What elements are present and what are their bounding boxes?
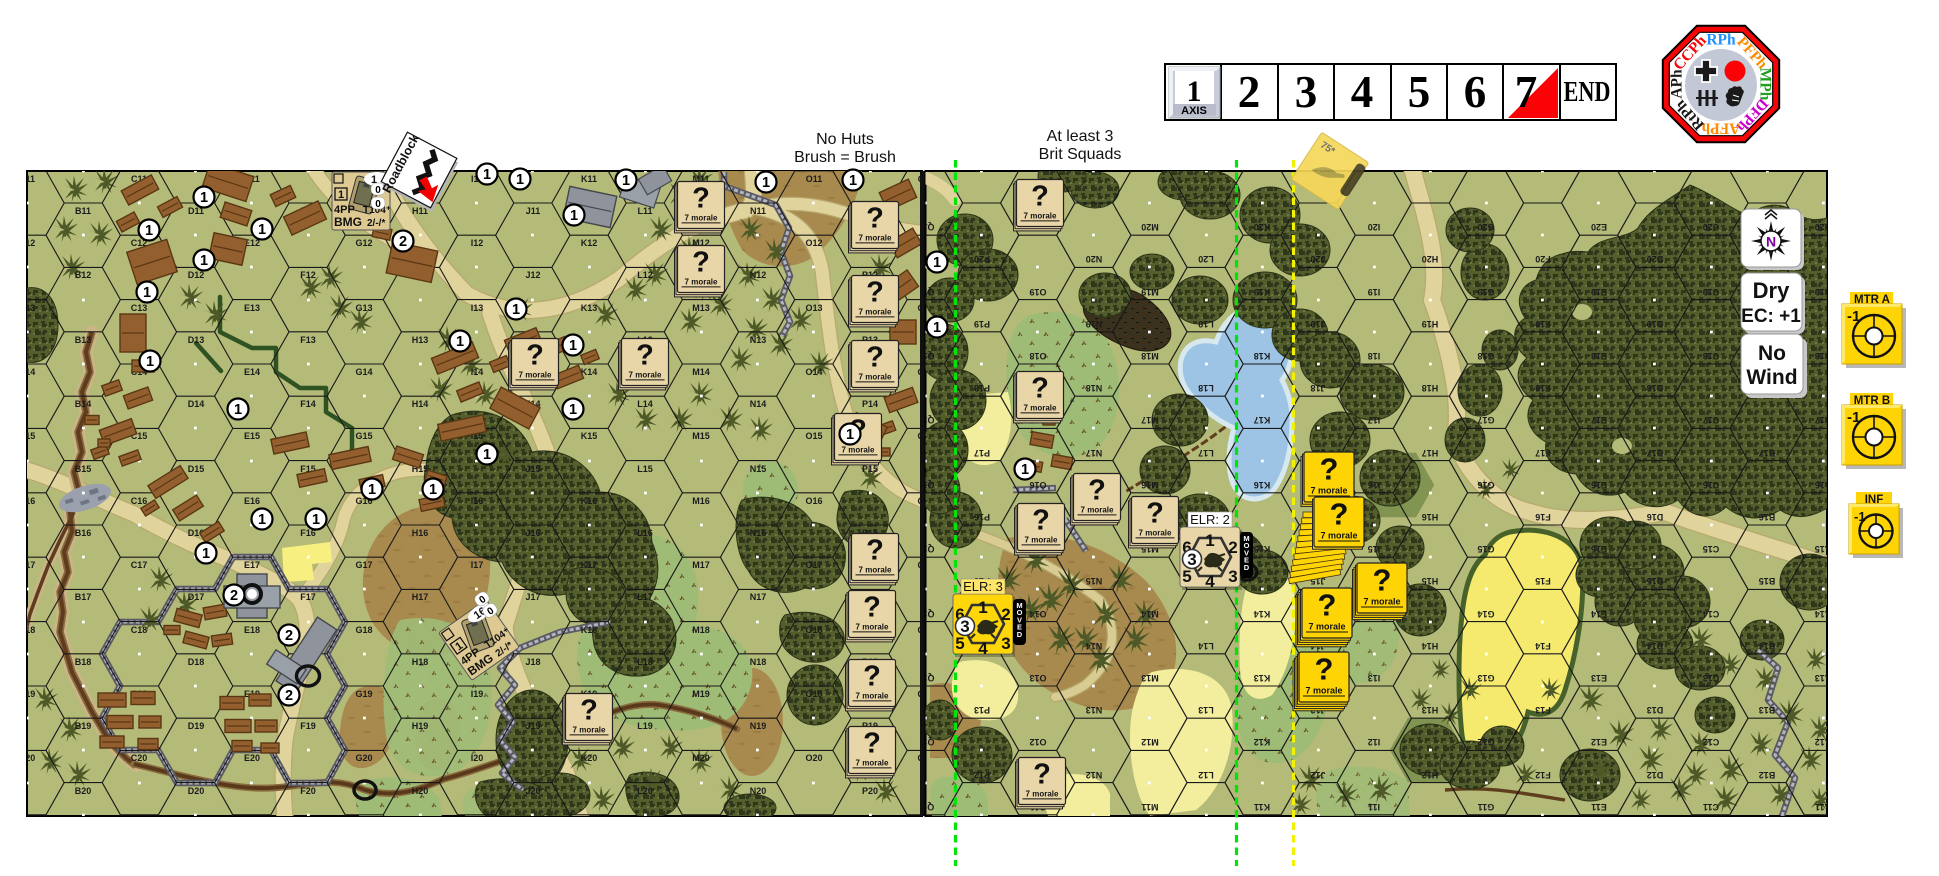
svg-text:?: ? [692, 246, 710, 278]
svg-text:O19: O19 [805, 689, 822, 699]
svg-text:?: ? [580, 694, 598, 726]
svg-text:1: 1 [429, 482, 437, 498]
svg-text:1: 1 [512, 302, 520, 318]
svg-text:F19: F19 [300, 721, 316, 731]
svg-text:M20: M20 [692, 753, 710, 763]
svg-text:1: 1 [569, 338, 577, 354]
svg-text:G12: G12 [1477, 737, 1494, 747]
svg-text:1: 1 [483, 167, 491, 183]
svg-text:P17: P17 [974, 448, 990, 458]
svg-text:?: ? [863, 727, 881, 759]
svg-text:F13: F13 [300, 335, 316, 345]
svg-text:A18: A18 [1815, 351, 1832, 361]
svg-text:H18: H18 [1422, 383, 1439, 393]
svg-text:N11: N11 [750, 206, 766, 216]
svg-text:K11: K11 [581, 174, 597, 184]
svg-text:F12: F12 [300, 270, 316, 280]
svg-text:H15: H15 [1422, 576, 1439, 586]
svg-text:L18: L18 [1198, 383, 1214, 393]
svg-text:N12: N12 [750, 270, 767, 280]
svg-text:I18: I18 [1368, 351, 1381, 361]
svg-text:1: 1 [258, 512, 266, 528]
svg-text:E17: E17 [1591, 415, 1607, 425]
svg-text:7 morale: 7 morale [1024, 404, 1057, 413]
svg-text:B13: B13 [1759, 705, 1776, 715]
svg-text:C12: C12 [1703, 737, 1720, 747]
svg-text:A18: A18 [19, 625, 36, 635]
svg-text:A20: A20 [1815, 222, 1832, 232]
svg-text:B16: B16 [1759, 512, 1776, 522]
svg-text:O16: O16 [805, 496, 822, 506]
svg-text:J19: J19 [525, 721, 540, 731]
svg-text:7 morale: 7 morale [859, 308, 892, 317]
svg-text:?: ? [1318, 588, 1337, 623]
svg-text:2: 2 [1238, 67, 1261, 117]
svg-text:O20: O20 [805, 753, 822, 763]
svg-text:K16: K16 [1254, 480, 1271, 490]
svg-text:E13: E13 [1591, 673, 1607, 683]
svg-text:P15: P15 [862, 464, 878, 474]
svg-text:K15: K15 [581, 431, 598, 441]
svg-text:E17: E17 [244, 560, 260, 570]
svg-text:I20: I20 [1368, 222, 1381, 232]
svg-text:J19: J19 [1310, 319, 1325, 329]
svg-text:B18: B18 [75, 657, 92, 667]
svg-text:H19: H19 [1422, 319, 1439, 329]
svg-text:J11: J11 [1311, 834, 1326, 844]
svg-text:E20: E20 [244, 753, 260, 763]
svg-text:F17: F17 [300, 592, 316, 602]
svg-text:I20: I20 [471, 753, 484, 763]
svg-text:E16: E16 [244, 496, 260, 506]
svg-text:E11: E11 [1591, 802, 1607, 812]
svg-text:D13: D13 [188, 335, 205, 345]
svg-text:D18: D18 [1647, 383, 1664, 393]
svg-text:?: ? [1315, 652, 1334, 687]
svg-text:H20: H20 [412, 786, 429, 796]
svg-text:L16: L16 [637, 528, 653, 538]
svg-text:G17: G17 [1477, 415, 1494, 425]
svg-text:F14: F14 [300, 399, 316, 409]
svg-text:B20: B20 [75, 786, 92, 796]
svg-text:?: ? [863, 660, 881, 692]
svg-text:C16: C16 [1703, 480, 1720, 490]
svg-text:F11: F11 [1535, 834, 1550, 844]
svg-text:2: 2 [285, 688, 293, 704]
svg-text:K13: K13 [581, 303, 598, 313]
svg-text:I16: I16 [471, 496, 484, 506]
svg-text:J20: J20 [1310, 254, 1325, 264]
svg-text:N18: N18 [1086, 383, 1103, 393]
svg-text:A20: A20 [19, 753, 36, 763]
svg-text:K16: K16 [581, 496, 598, 506]
svg-text:C19: C19 [1703, 287, 1720, 297]
svg-text:7 morale: 7 morale [1320, 531, 1357, 541]
svg-text:7 morale: 7 morale [1363, 597, 1400, 607]
svg-text:3: 3 [1001, 634, 1010, 653]
svg-text:K17: K17 [581, 560, 598, 570]
svg-text:G13: G13 [355, 303, 372, 313]
svg-text:C13: C13 [1703, 673, 1720, 683]
svg-text:C16: C16 [131, 496, 148, 506]
svg-text:-1: -1 [1847, 409, 1860, 426]
svg-text:K12: K12 [1254, 737, 1271, 747]
svg-text:B16: B16 [75, 528, 92, 538]
svg-text:E20: E20 [1591, 222, 1607, 232]
svg-text:P14: P14 [862, 399, 878, 409]
svg-text:J18: J18 [1310, 383, 1325, 393]
svg-text:G20: G20 [355, 753, 372, 763]
svg-text:C17: C17 [1703, 415, 1720, 425]
svg-text:2: 2 [1228, 538, 1237, 557]
svg-text:1: 1 [978, 598, 987, 617]
svg-text:C11: C11 [1703, 802, 1719, 812]
svg-text:B11: B11 [75, 206, 91, 216]
svg-text:O11: O11 [806, 174, 823, 184]
svg-text:O14: O14 [805, 367, 822, 377]
svg-text:Brush = Brush: Brush = Brush [794, 149, 896, 166]
svg-text:I19: I19 [471, 689, 484, 699]
svg-text:G15: G15 [1477, 544, 1494, 554]
svg-text:7 morale: 7 morale [859, 373, 892, 382]
svg-text:B13: B13 [75, 335, 92, 345]
svg-text:3: 3 [1295, 67, 1318, 117]
svg-text:7 morale: 7 morale [1024, 212, 1057, 221]
svg-text:B11: B11 [1759, 834, 1775, 844]
svg-text:B14: B14 [1759, 641, 1776, 651]
svg-text:G12: G12 [355, 238, 372, 248]
svg-text:N20: N20 [1086, 254, 1103, 264]
svg-text:?: ? [1031, 372, 1049, 404]
svg-text:F12: F12 [1535, 770, 1551, 780]
svg-text:C18: C18 [1703, 351, 1720, 361]
svg-text:G19: G19 [1477, 287, 1494, 297]
svg-text:2: 2 [230, 588, 238, 604]
svg-text:D20: D20 [188, 786, 205, 796]
svg-text:4: 4 [1351, 67, 1374, 117]
svg-text:A12: A12 [1815, 737, 1832, 747]
svg-text:EC: +1: EC: +1 [1741, 306, 1801, 327]
svg-text:1: 1 [234, 402, 242, 418]
svg-text:O16: O16 [1029, 480, 1046, 490]
svg-text:G19: G19 [355, 689, 372, 699]
svg-text:7 morale: 7 morale [1025, 536, 1058, 545]
svg-text:O18: O18 [805, 625, 822, 635]
svg-text:O13: O13 [1029, 673, 1046, 683]
svg-text:L18: L18 [637, 657, 653, 667]
svg-text:H14: H14 [412, 399, 429, 409]
svg-text:K15: K15 [1254, 544, 1271, 554]
svg-text:?: ? [1330, 497, 1349, 532]
svg-text:A16: A16 [19, 496, 36, 506]
svg-text:?: ? [526, 339, 544, 371]
svg-text:M19: M19 [1141, 287, 1159, 297]
svg-text:O15: O15 [805, 431, 822, 441]
svg-text:I12: I12 [471, 238, 484, 248]
svg-text:AXIS: AXIS [1181, 105, 1207, 117]
svg-text:I19: I19 [1368, 287, 1381, 297]
svg-text:C20: C20 [131, 753, 148, 763]
svg-text:A13: A13 [19, 303, 36, 313]
svg-text:K20: K20 [1254, 222, 1271, 232]
svg-text:K17: K17 [1254, 415, 1271, 425]
svg-text:M14: M14 [692, 367, 710, 377]
svg-text:ELR: 2: ELR: 2 [1190, 512, 1230, 527]
svg-text:1: 1 [258, 222, 266, 238]
svg-text:L12: L12 [637, 270, 653, 280]
svg-text:I13: I13 [471, 303, 484, 313]
svg-text:L20: L20 [1198, 254, 1214, 264]
svg-text:M12: M12 [1141, 737, 1159, 747]
svg-text:L14: L14 [1198, 641, 1214, 651]
svg-text:L19: L19 [1198, 319, 1214, 329]
svg-text:D14: D14 [188, 399, 205, 409]
svg-text:O12: O12 [1029, 737, 1046, 747]
svg-text:E16: E16 [1591, 480, 1607, 490]
svg-text:H12: H12 [1422, 770, 1439, 780]
svg-text:P19: P19 [974, 319, 990, 329]
svg-text:1: 1 [933, 255, 941, 271]
svg-text:M17: M17 [692, 560, 710, 570]
svg-text:O13: O13 [805, 303, 822, 313]
svg-text:N: N [1766, 234, 1776, 250]
svg-text:1: 1 [200, 190, 208, 206]
svg-text:C18: C18 [131, 625, 148, 635]
svg-text:J17: J17 [525, 592, 540, 602]
svg-text:-1: -1 [1854, 509, 1866, 524]
svg-text:K18: K18 [581, 625, 598, 635]
svg-text:M17: M17 [1141, 415, 1159, 425]
svg-text:7 morale: 7 morale [842, 446, 875, 455]
svg-text:H16: H16 [412, 528, 429, 538]
svg-text:Brit Squads: Brit Squads [1039, 146, 1122, 163]
svg-text:1: 1 [146, 354, 154, 370]
svg-text:I11: I11 [1368, 802, 1380, 812]
svg-text:I17: I17 [1368, 415, 1381, 425]
svg-text:4: 4 [1205, 572, 1215, 591]
svg-text:3: 3 [1187, 550, 1196, 569]
svg-text:1: 1 [200, 253, 208, 269]
svg-text:A13: A13 [1815, 673, 1832, 683]
svg-text:O18: O18 [1029, 351, 1046, 361]
svg-text:P20: P20 [862, 786, 878, 796]
svg-text:7 morale: 7 morale [1308, 622, 1345, 632]
svg-text:F18: F18 [1535, 383, 1551, 393]
svg-text:N15: N15 [1086, 576, 1103, 586]
svg-text:D13: D13 [1647, 705, 1664, 715]
svg-text:2: 2 [399, 234, 407, 250]
svg-text:J20: J20 [525, 786, 540, 796]
svg-text:B15: B15 [75, 464, 92, 474]
svg-text:E14: E14 [1591, 609, 1607, 619]
svg-text:1: 1 [622, 173, 630, 189]
svg-text:M20: M20 [1141, 222, 1159, 232]
svg-text:E12: E12 [1591, 737, 1607, 747]
svg-text:?: ? [1031, 180, 1049, 212]
svg-text:K11: K11 [1254, 802, 1270, 812]
svg-text:D: D [1244, 563, 1250, 572]
svg-text:N20: N20 [750, 786, 767, 796]
svg-text:G17: G17 [355, 560, 372, 570]
svg-text:D17: D17 [1647, 448, 1664, 458]
svg-text:?: ? [636, 339, 654, 371]
svg-text:J12: J12 [1310, 770, 1325, 780]
svg-text:F14: F14 [1535, 641, 1551, 651]
svg-text:K18: K18 [1254, 351, 1271, 361]
svg-text:B17: B17 [75, 592, 92, 602]
svg-text:7 morale: 7 morale [519, 371, 552, 380]
svg-text:D15: D15 [1647, 576, 1664, 586]
svg-text:P13: P13 [974, 705, 990, 715]
svg-text:E18: E18 [1591, 351, 1607, 361]
svg-text:7 morale: 7 morale [573, 726, 606, 735]
svg-text:M16: M16 [692, 496, 710, 506]
svg-text:K14: K14 [1254, 609, 1271, 619]
svg-text:Dry: Dry [1753, 278, 1790, 303]
svg-text:G18: G18 [1477, 351, 1494, 361]
svg-text:1: 1 [570, 208, 578, 224]
svg-text:D19: D19 [1647, 319, 1664, 329]
svg-text:E18: E18 [244, 625, 260, 635]
svg-text:L17: L17 [637, 592, 653, 602]
svg-text:K19: K19 [1254, 287, 1271, 297]
svg-text:Wind: Wind [1746, 366, 1797, 389]
svg-text:7 morale: 7 morale [1139, 529, 1172, 538]
svg-text:A11: A11 [1815, 802, 1831, 812]
svg-text:D18: D18 [188, 657, 205, 667]
svg-text:?: ? [863, 591, 881, 623]
svg-text:O17: O17 [805, 560, 822, 570]
svg-text:1: 1 [483, 447, 491, 463]
svg-text:?: ? [1320, 452, 1339, 487]
svg-text:J12: J12 [525, 270, 540, 280]
svg-text:A11: A11 [19, 174, 35, 184]
svg-text:J18: J18 [525, 657, 540, 667]
svg-text:L11: L11 [1198, 834, 1213, 844]
svg-text:?: ? [866, 341, 884, 373]
svg-text:M11: M11 [1141, 802, 1158, 812]
svg-text:M13: M13 [692, 303, 710, 313]
svg-text:N13: N13 [750, 335, 767, 345]
svg-text:E19: E19 [1591, 287, 1607, 297]
svg-text:7 morale: 7 morale [1026, 790, 1059, 799]
svg-text:D: D [1017, 630, 1023, 639]
svg-text:7 morale: 7 morale [856, 623, 889, 632]
svg-text:1: 1 [933, 320, 941, 336]
svg-text:G13: G13 [1477, 673, 1494, 683]
svg-text:G20: G20 [1477, 222, 1494, 232]
svg-text:H20: H20 [1422, 254, 1439, 264]
svg-text:F15: F15 [1535, 576, 1551, 586]
svg-text:1: 1 [849, 173, 857, 189]
svg-text:K20: K20 [581, 753, 598, 763]
svg-text:END: END [1564, 77, 1611, 108]
svg-text:1: 1 [1187, 75, 1202, 108]
svg-text:0: 0 [375, 199, 381, 210]
svg-text:O12: O12 [805, 238, 822, 248]
svg-text:C17: C17 [131, 560, 148, 570]
svg-text:P11: P11 [974, 834, 990, 844]
svg-text:E15: E15 [244, 431, 260, 441]
svg-text:1: 1 [456, 334, 464, 350]
svg-text:E13: E13 [244, 303, 260, 313]
svg-text:A14: A14 [19, 367, 36, 377]
svg-text:D14: D14 [1647, 641, 1664, 651]
svg-text:H18: H18 [412, 657, 429, 667]
svg-text:L14: L14 [637, 399, 653, 409]
svg-text:B19: B19 [75, 721, 92, 731]
svg-text:O19: O19 [1029, 287, 1046, 297]
svg-text:I16: I16 [1368, 480, 1381, 490]
svg-text:N13: N13 [1086, 705, 1103, 715]
svg-text:?: ? [1146, 497, 1164, 529]
svg-text:?: ? [1032, 504, 1050, 536]
svg-text:-1: -1 [1847, 308, 1860, 325]
svg-text:I17: I17 [471, 560, 484, 570]
svg-text:B15: B15 [1759, 576, 1776, 586]
svg-text:D20: D20 [1647, 254, 1664, 264]
svg-text:1: 1 [145, 223, 153, 239]
svg-text:A15: A15 [1815, 544, 1832, 554]
svg-text:L13: L13 [1198, 705, 1214, 715]
svg-text:G14: G14 [1477, 609, 1494, 619]
svg-text:B12: B12 [75, 270, 92, 280]
svg-text:H13: H13 [412, 335, 429, 345]
svg-text:?: ? [1088, 474, 1106, 506]
svg-text:B12: B12 [1759, 770, 1776, 780]
svg-text:2: 2 [285, 628, 293, 644]
svg-text:M18: M18 [1141, 351, 1159, 361]
svg-text:No Huts: No Huts [816, 131, 874, 148]
svg-text:ELR: 3: ELR: 3 [963, 579, 1003, 594]
svg-text:P16: P16 [974, 512, 990, 522]
svg-text:7 morale: 7 morale [629, 371, 662, 380]
svg-text:A17: A17 [19, 560, 36, 570]
svg-text:F16: F16 [1535, 512, 1551, 522]
svg-text:?: ? [1033, 758, 1051, 790]
svg-text:P12: P12 [974, 770, 990, 780]
svg-text:M19: M19 [692, 689, 710, 699]
svg-text:2: 2 [1001, 605, 1010, 624]
svg-text:7 morale: 7 morale [1305, 686, 1342, 696]
svg-text:K12: K12 [581, 238, 598, 248]
svg-text:1: 1 [368, 482, 376, 498]
svg-text:N18: N18 [750, 657, 767, 667]
svg-text:N19: N19 [750, 721, 767, 731]
svg-text:7 morale: 7 morale [685, 278, 718, 287]
svg-text:H11: H11 [1422, 834, 1438, 844]
svg-text:1: 1 [762, 175, 770, 191]
svg-text:7 morale: 7 morale [1081, 506, 1114, 515]
svg-text:H17: H17 [412, 592, 429, 602]
svg-text:C14: C14 [1703, 609, 1720, 619]
svg-text:J11: J11 [526, 206, 541, 216]
svg-text:N16: N16 [750, 528, 767, 538]
svg-text:5: 5 [1408, 67, 1431, 117]
svg-text:BMG: BMG [334, 215, 362, 229]
svg-text:E15: E15 [1591, 544, 1607, 554]
svg-text:A14: A14 [1815, 609, 1832, 619]
svg-text:4: 4 [978, 639, 988, 658]
svg-text:F20: F20 [300, 786, 316, 796]
svg-text:G11: G11 [1478, 802, 1495, 812]
svg-text:?: ? [866, 276, 884, 308]
svg-text:2/-/*: 2/-/* [367, 218, 385, 229]
svg-text:C15: C15 [1703, 544, 1720, 554]
svg-text:A16: A16 [1815, 480, 1832, 490]
svg-text:N17: N17 [750, 592, 767, 602]
svg-text:F19: F19 [1535, 319, 1551, 329]
